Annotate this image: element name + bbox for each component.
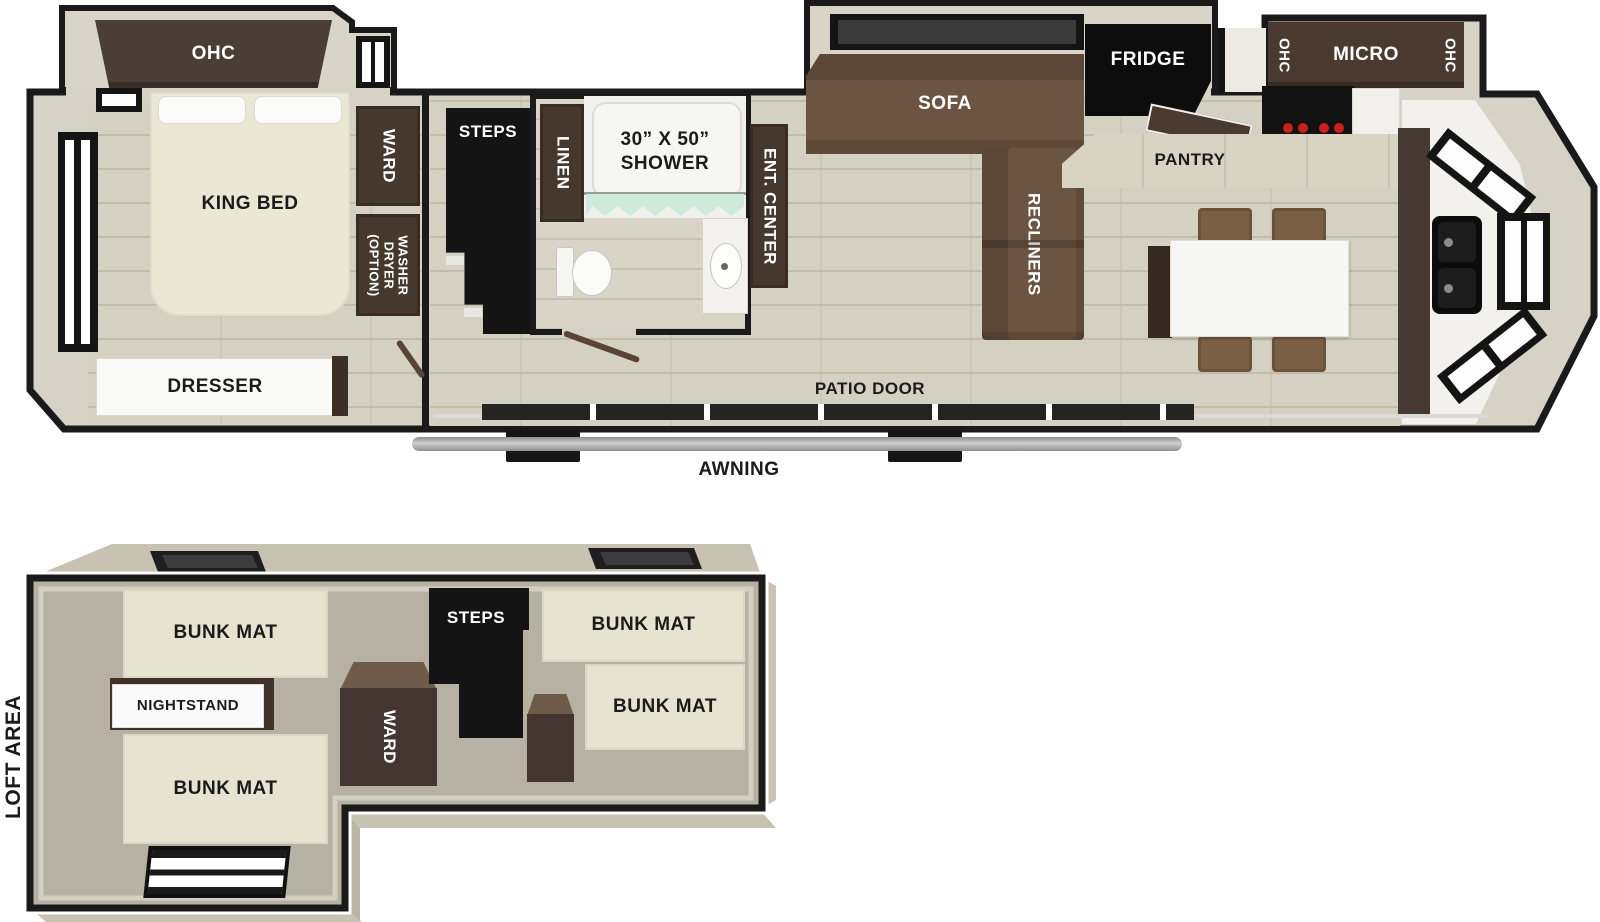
bunk-mat-label: BUNK MAT bbox=[585, 664, 745, 750]
loft-ward-front: WARD bbox=[340, 688, 437, 786]
loft-ward-top bbox=[340, 662, 437, 690]
loft-bunk-mat-mid-right: BUNK MAT bbox=[585, 664, 745, 750]
loft-ward-label: WARD bbox=[340, 688, 437, 786]
dining-table bbox=[1170, 240, 1349, 337]
micro-label: MICRO bbox=[1298, 22, 1434, 88]
loft-nightstand-top: NIGHTSTAND bbox=[112, 684, 264, 728]
nightstand-label: NIGHTSTAND bbox=[113, 685, 263, 727]
king-bed: KING BED bbox=[150, 92, 350, 316]
washer-dryer-line3: (OPTION) bbox=[367, 233, 381, 297]
washer-dryer-label: WASHER DRYER (OPTION) bbox=[367, 233, 410, 297]
dresser-label: DRESSER bbox=[97, 359, 333, 415]
rv-floorplan-canvas: OHC KING BED WARD WASHER DRYER (OPTION) … bbox=[0, 0, 1600, 922]
loft-nightstand: NIGHTSTAND bbox=[110, 678, 274, 730]
loft-area-title-wrap: LOFT AREA bbox=[0, 672, 28, 842]
dining-chair bbox=[1272, 208, 1326, 244]
patio-door-label: PATIO DOOR bbox=[788, 378, 952, 400]
loft-floor-window-panes bbox=[148, 850, 287, 894]
sofa: SOFA bbox=[806, 54, 1084, 154]
loft-bunk-mat-bottom-left: BUNK MAT bbox=[123, 734, 328, 844]
kitchen-ohc-cabinet: OHC MICRO OHC bbox=[1268, 22, 1464, 88]
kitchen-alcove-window bbox=[1218, 28, 1225, 92]
loft-cabinet-top bbox=[527, 694, 574, 716]
dining-chair bbox=[1198, 336, 1252, 372]
sink-drain bbox=[1444, 238, 1453, 247]
loft-roof-vent-2-inner bbox=[600, 552, 694, 565]
stove bbox=[1262, 86, 1354, 138]
dresser: DRESSER bbox=[96, 358, 334, 416]
ohc-left-label: OHC bbox=[1268, 22, 1298, 88]
bedroom-ward: WARD bbox=[356, 106, 420, 206]
bedroom-wall bbox=[422, 92, 429, 429]
bedroom-ward-label: WARD bbox=[356, 106, 420, 206]
ent-center-label: ENT. CENTER bbox=[750, 124, 788, 288]
bunk-mat-label: BUNK MAT bbox=[123, 734, 328, 844]
loft-ward: WARD bbox=[340, 662, 437, 786]
shower-size-label: 30” X 50” bbox=[584, 128, 746, 152]
burner bbox=[1334, 123, 1344, 133]
fridge: FRIDGE bbox=[1085, 24, 1211, 116]
washer-dryer: WASHER DRYER (OPTION) bbox=[356, 214, 420, 316]
bunk-mat-label: BUNK MAT bbox=[542, 589, 745, 662]
awning-bar bbox=[412, 437, 1182, 451]
step-tread bbox=[446, 256, 464, 265]
counter-cabinet-strip bbox=[1398, 128, 1430, 418]
pillow bbox=[158, 96, 246, 124]
kitchen-sink bbox=[1432, 216, 1482, 314]
dining-chair bbox=[1198, 208, 1252, 244]
burner bbox=[1319, 123, 1329, 133]
loft-floor-window bbox=[143, 846, 290, 898]
bay-window-middle bbox=[1497, 213, 1550, 310]
awning-label: AWNING bbox=[664, 458, 814, 482]
sofa-label: SOFA bbox=[806, 54, 1084, 154]
loft-bunk-mat-top-right: BUNK MAT bbox=[542, 589, 745, 662]
dining-chair bbox=[1272, 336, 1326, 372]
dining-bench bbox=[1148, 246, 1172, 338]
patio-door-glass bbox=[482, 404, 1194, 420]
loft-steps-label: STEPS bbox=[429, 608, 523, 628]
sink-drain bbox=[1444, 284, 1453, 293]
linen-label: LINEN bbox=[540, 104, 584, 222]
bunk-mat-label: BUNK MAT bbox=[123, 589, 328, 678]
king-bed-label: KING BED bbox=[150, 92, 350, 316]
sofa-slideout-window-glass bbox=[838, 20, 1076, 44]
loft-area-title: LOFT AREA bbox=[2, 695, 25, 819]
faucet bbox=[721, 263, 728, 270]
toilet-bowl bbox=[572, 250, 612, 296]
bedroom-left-window bbox=[58, 132, 98, 352]
loft-bunk-mat-top-left: BUNK MAT bbox=[123, 589, 328, 678]
pantry-label: PANTRY bbox=[1120, 148, 1260, 172]
step-tread bbox=[464, 308, 482, 317]
fridge-label: FRIDGE bbox=[1085, 24, 1211, 96]
pillow bbox=[254, 96, 342, 124]
linen-cabinet: LINEN bbox=[540, 104, 584, 222]
loft-roof-vent-inner bbox=[162, 555, 258, 568]
bedroom-ohc-label: OHC bbox=[95, 20, 332, 88]
bedroom-ohc-cabinet: OHC bbox=[95, 20, 332, 88]
loft-cabinet bbox=[527, 694, 574, 782]
washer-dryer-line1: WASHER bbox=[395, 233, 409, 297]
main-steps-label: STEPS bbox=[446, 122, 530, 142]
burner bbox=[1283, 123, 1293, 133]
shower-label: 30” X 50” SHOWER bbox=[584, 128, 746, 176]
bedroom-slide-window bbox=[356, 36, 390, 88]
dresser-end-cabinet bbox=[332, 356, 348, 416]
washer-dryer-line2: DRYER bbox=[381, 233, 395, 297]
kitchen-alcove bbox=[1222, 28, 1266, 92]
loft-cabinet-front bbox=[527, 714, 574, 782]
bathroom-vanity bbox=[702, 218, 748, 314]
ohc-right-label: OHC bbox=[1434, 22, 1464, 88]
burner bbox=[1298, 123, 1308, 133]
bedroom-top-window bbox=[96, 88, 142, 112]
shower-word-label: SHOWER bbox=[584, 152, 746, 176]
ent-center: ENT. CENTER bbox=[750, 124, 788, 288]
recliner-divider bbox=[982, 240, 1084, 248]
